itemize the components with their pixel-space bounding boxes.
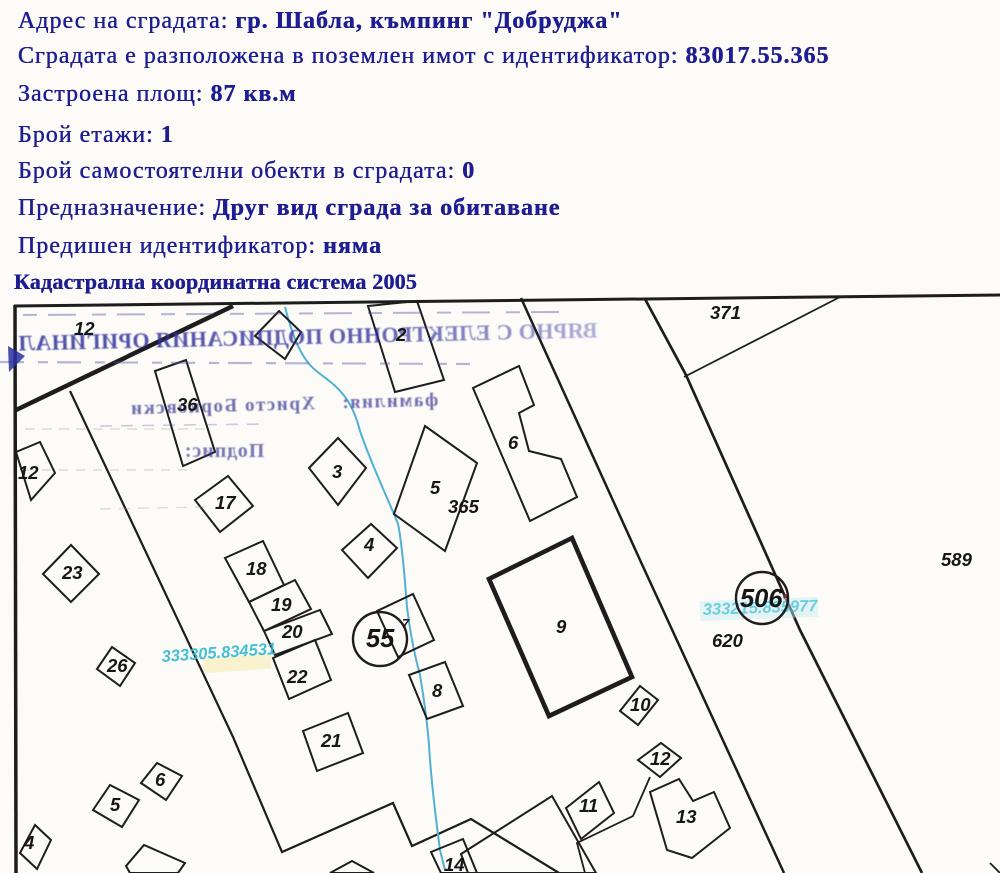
svg-text:5: 5 — [110, 794, 121, 815]
svg-text:12: 12 — [74, 318, 95, 339]
svg-text:36: 36 — [177, 394, 198, 415]
svg-text:371: 371 — [710, 302, 741, 323]
svg-text:12: 12 — [650, 748, 671, 769]
svg-text:55: 55 — [366, 625, 395, 653]
svg-text:19: 19 — [271, 594, 292, 615]
svg-text:фамилия: Христо Борковски: фамилия: Христо Борковски — [129, 390, 438, 420]
svg-text:ВЯРНО С ЕЛЕКТРОННО ПОДПИСАНИЯ: ВЯРНО С ЕЛЕКТРОННО ПОДПИСАНИЯ ОРИГИНАЛ — [18, 317, 598, 355]
svg-text:6: 6 — [155, 769, 166, 790]
svg-text:10: 10 — [630, 694, 651, 715]
svg-text:2: 2 — [395, 324, 407, 345]
svg-text:9: 9 — [556, 616, 567, 637]
svg-text:7: 7 — [402, 616, 410, 631]
svg-text:6: 6 — [508, 432, 519, 453]
svg-text:26: 26 — [106, 655, 128, 676]
svg-text:4: 4 — [23, 832, 34, 853]
svg-text:365: 365 — [448, 496, 480, 517]
svg-text:620: 620 — [712, 630, 744, 651]
svg-text:20: 20 — [281, 621, 303, 642]
svg-text:17: 17 — [215, 492, 237, 513]
svg-text:22: 22 — [286, 666, 308, 687]
svg-text:Подпис:: Подпис: — [184, 440, 265, 462]
svg-text:18: 18 — [246, 558, 267, 579]
svg-text:21: 21 — [320, 730, 342, 751]
svg-text:12: 12 — [18, 462, 39, 483]
svg-text:23: 23 — [61, 562, 83, 583]
svg-text:506: 506 — [740, 585, 783, 613]
svg-text:13: 13 — [676, 806, 697, 827]
svg-text:14: 14 — [444, 854, 465, 873]
svg-text:589: 589 — [941, 549, 973, 570]
svg-text:8: 8 — [432, 680, 443, 701]
svg-text:11: 11 — [579, 795, 598, 816]
svg-text:3: 3 — [332, 461, 343, 482]
svg-text:4: 4 — [363, 534, 374, 555]
svg-text:5: 5 — [430, 477, 441, 498]
